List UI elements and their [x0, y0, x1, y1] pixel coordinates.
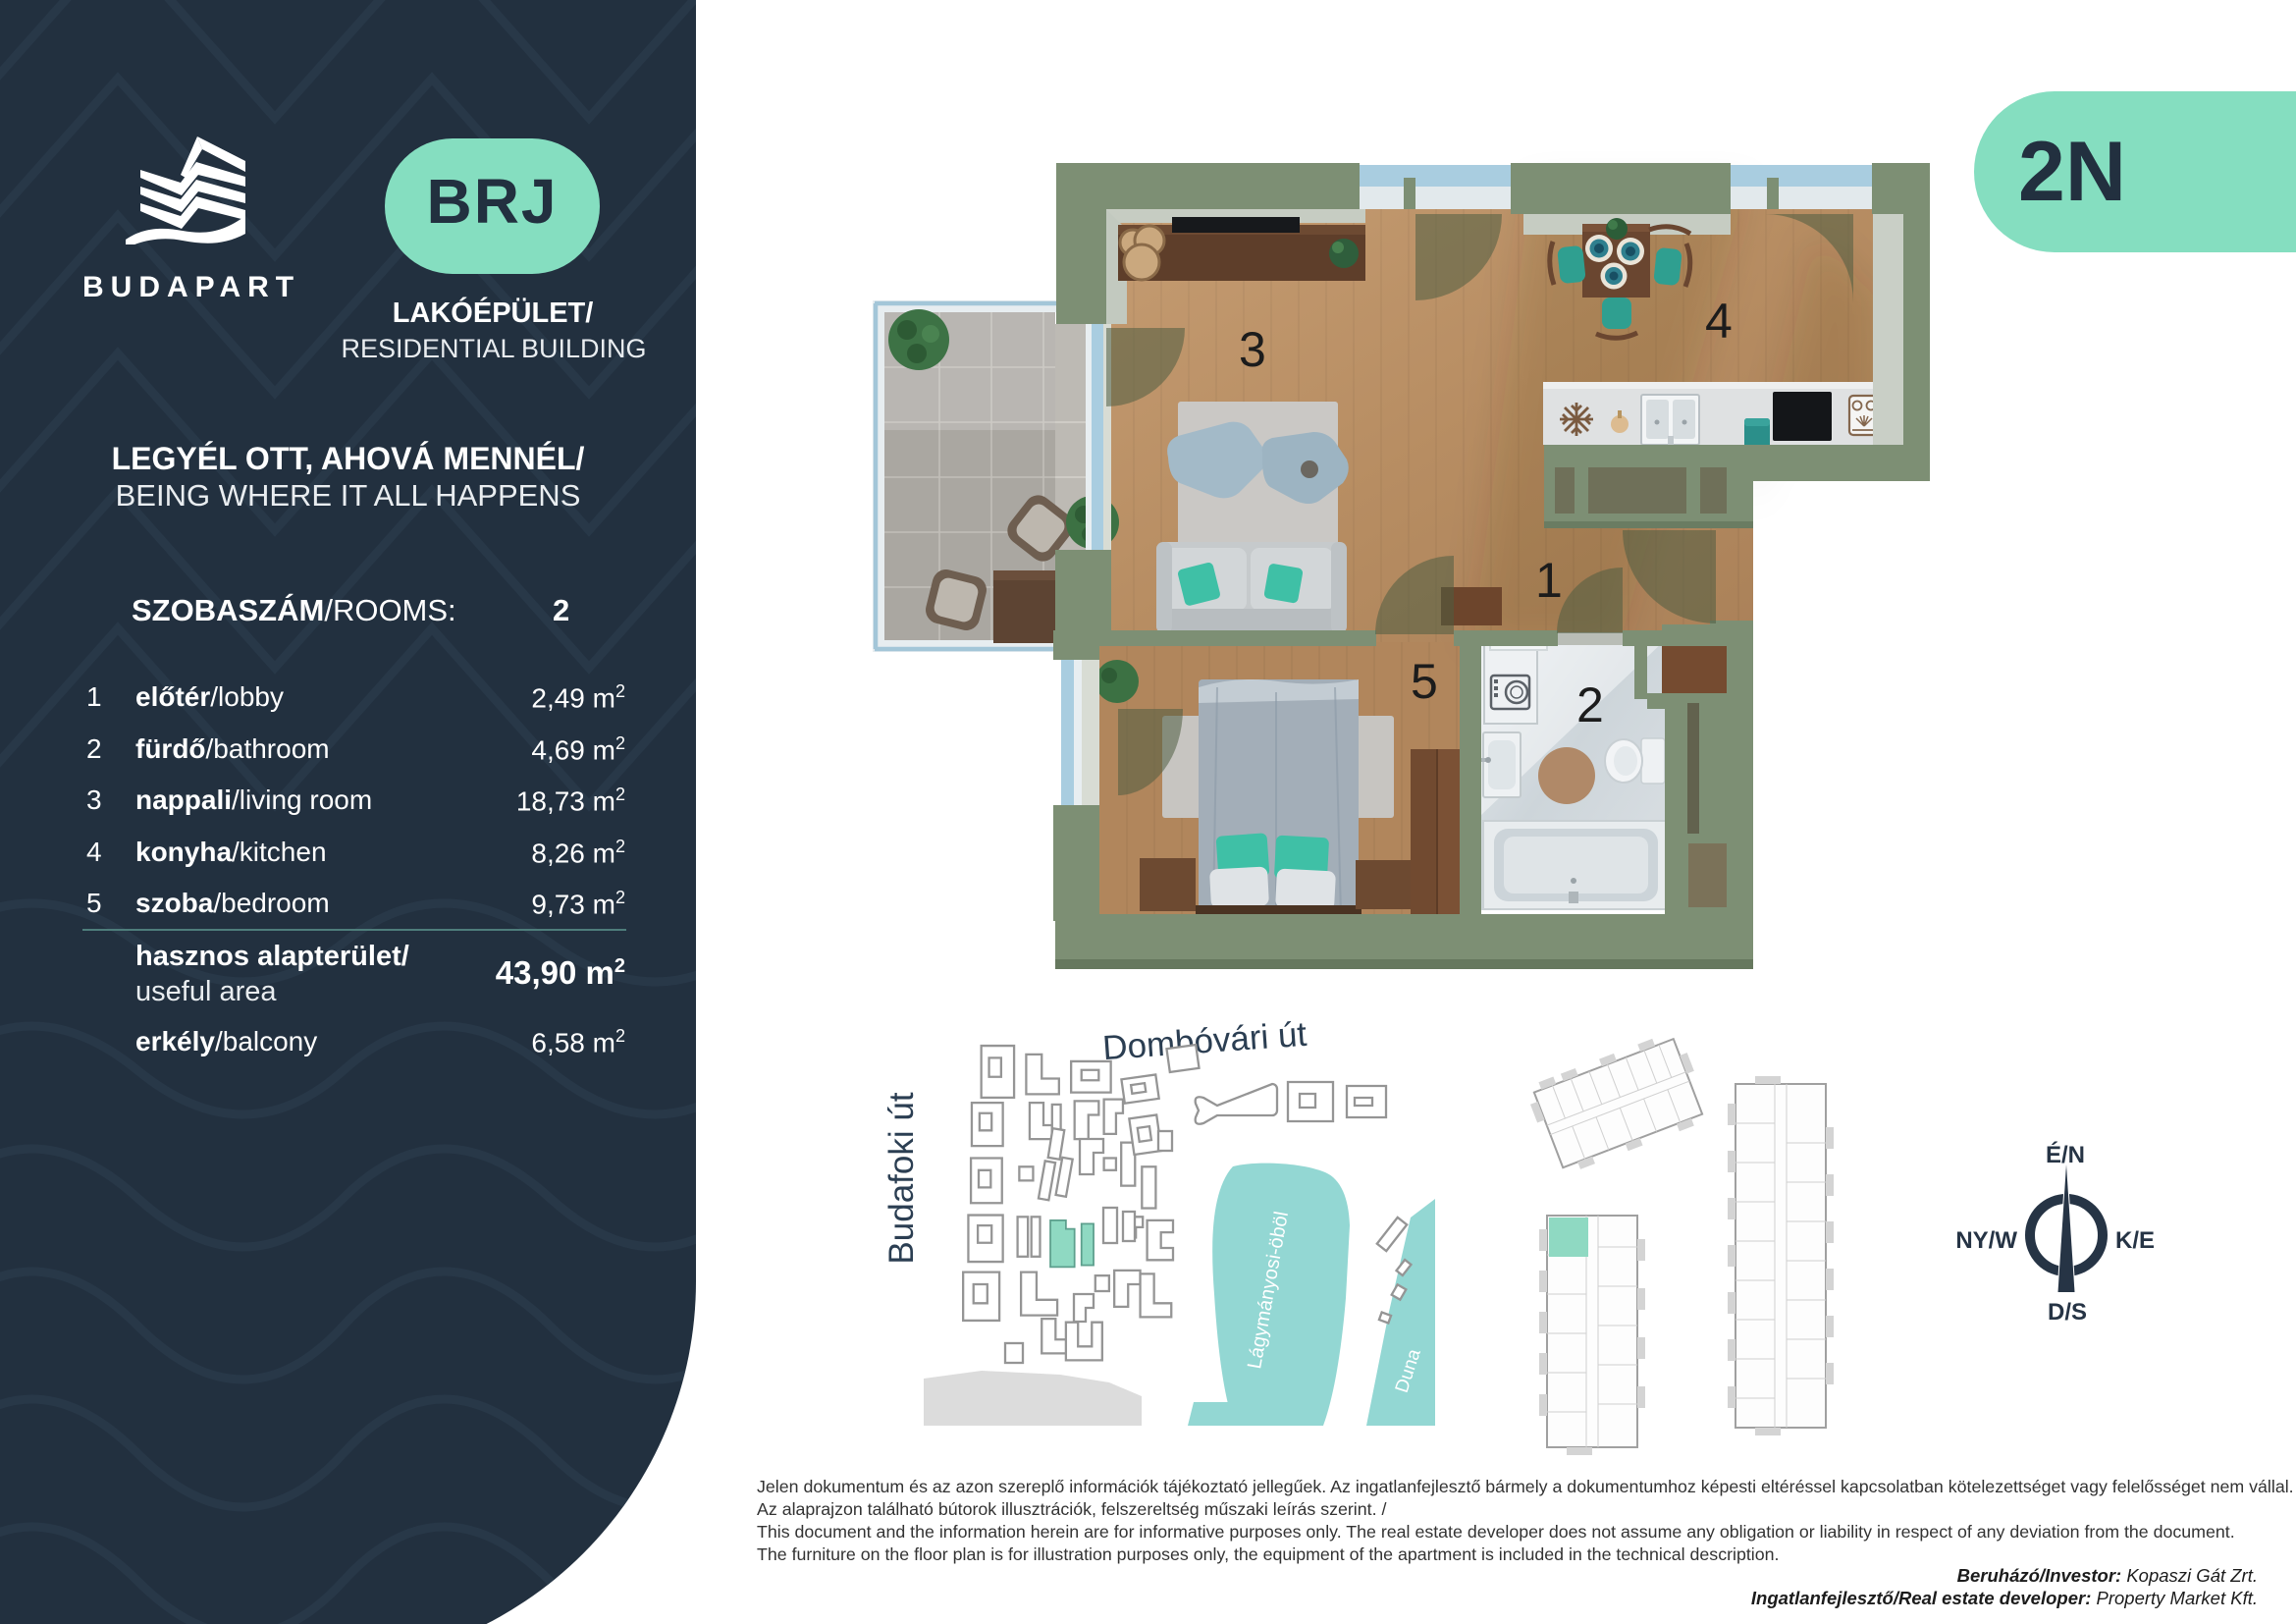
svg-text:4: 4 — [1705, 294, 1733, 349]
svg-text:2: 2 — [1576, 677, 1604, 732]
svg-text:É/N: É/N — [2046, 1141, 2085, 1168]
svg-text:D/S: D/S — [2048, 1299, 2087, 1326]
svg-text:5: 5 — [1411, 654, 1438, 709]
svg-text:NY/W: NY/W — [1955, 1227, 2017, 1254]
svg-text:Budafoki út: Budafoki út — [883, 1092, 921, 1264]
svg-text:3: 3 — [1239, 322, 1266, 377]
svg-text:1: 1 — [1535, 553, 1563, 608]
svg-text:K/E: K/E — [2115, 1227, 2155, 1254]
svg-text:Dombóvári út: Dombóvári út — [1101, 1015, 1308, 1067]
